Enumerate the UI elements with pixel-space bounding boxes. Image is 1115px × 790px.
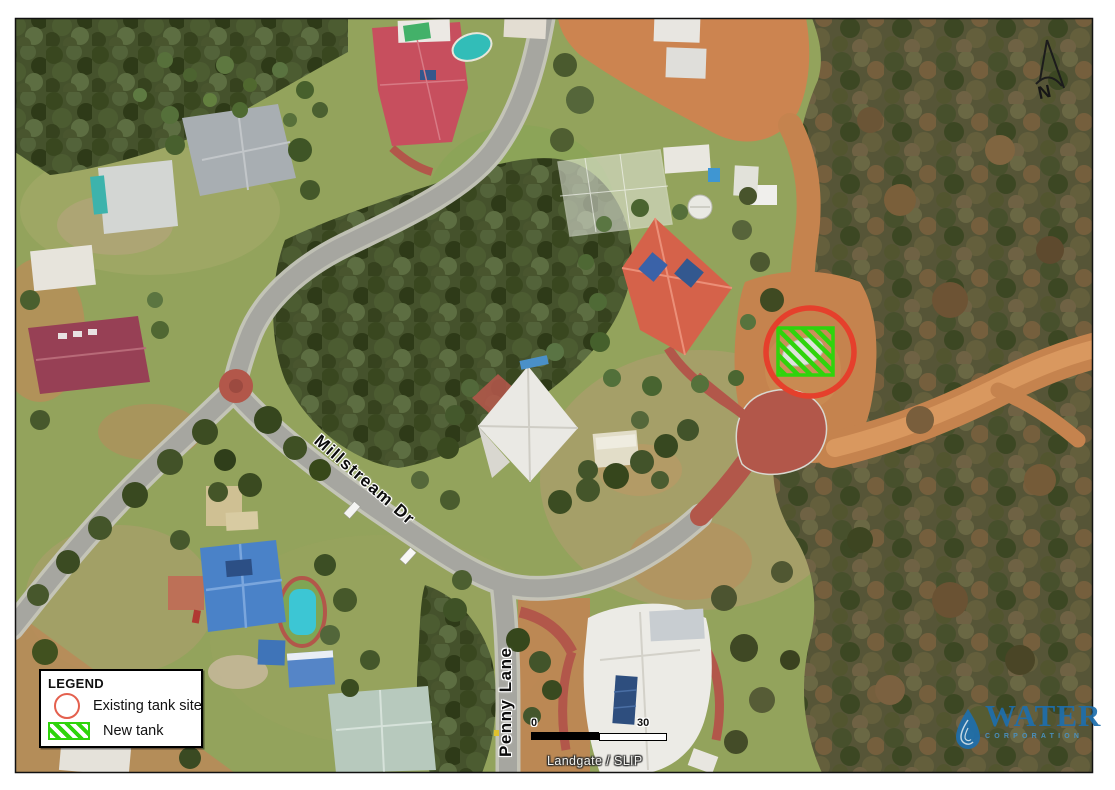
scale-bar-end-label: 30 [637,717,649,729]
scale-bar-solid-segment [531,732,599,740]
scale-bar-open-segment [599,733,667,741]
street-label-penny-lane: Penny Lane [496,647,516,757]
legend-title: LEGEND [48,676,201,691]
legend-box: LEGEND Existing tank site New tank [39,669,203,748]
logo-subtitle: CORPORATION [985,733,1101,740]
legend-item-label: New tank [103,723,163,739]
new-tank-marker [778,328,833,375]
water-corporation-logo: WATER CORPORATION [955,700,1101,754]
legend-item-new-tank: New tank [41,718,201,743]
water-drop-icon [955,708,981,754]
legend-item-existing-tank: Existing tank site [41,693,201,718]
scale-bar-start-label: 0 [531,717,537,729]
legend-item-label: Existing tank site [93,698,202,714]
existing-tank-legend-icon [54,693,80,719]
attribution-text: Landgate / SLIP [547,754,643,768]
logo-name: WATER [985,700,1101,732]
map-page: Millstream Dr Penny Lane N LEGEND Existi… [0,0,1115,790]
new-tank-legend-swatch [48,722,90,740]
scale-bar: 0 30 [531,717,667,745]
